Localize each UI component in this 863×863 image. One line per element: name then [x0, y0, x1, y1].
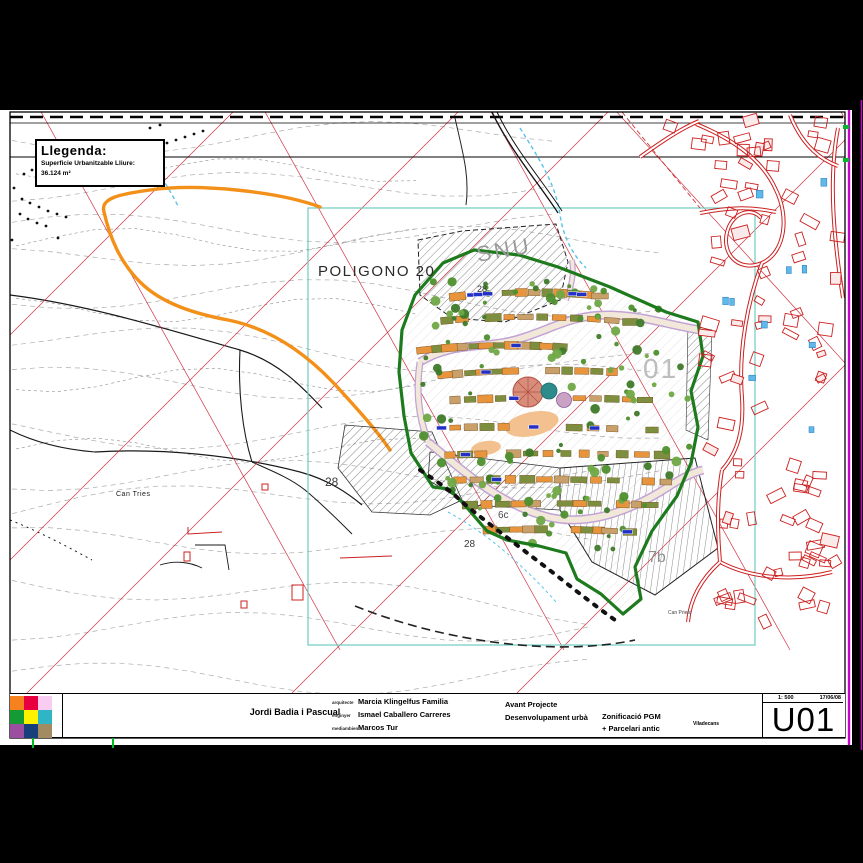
drawing-title: Zonificació PGM + Parcelari antic — [602, 711, 661, 735]
project-title: Avant Projecte Desenvolupament urbà — [505, 698, 588, 724]
legend-line1: Superficie Urbanitzable Lliure: — [41, 160, 159, 168]
pond — [541, 383, 557, 399]
map-label: 6c — [498, 510, 509, 521]
sheet-code-cell: 1: 500 17/06/08 U01 — [762, 694, 845, 739]
drawing-line1: Zonificació PGM — [602, 711, 661, 723]
title-block: Jordi Badia i Pascual arquitecteMarcia K… — [10, 693, 845, 738]
municipality: Viladecans — [693, 721, 719, 727]
legend-title: Llegenda: — [41, 143, 159, 158]
map-label: 7b — [648, 549, 666, 566]
team-list: arquitecteMarcia Klingelfus Familiaengin… — [332, 697, 451, 736]
map-label: 01 — [643, 353, 678, 384]
project-line1: Avant Projecte — [505, 698, 588, 711]
team-name: Ismael Caballero Carreres — [358, 710, 451, 719]
sheet-code: U01 — [762, 701, 845, 739]
team-role: mediambient — [332, 726, 358, 731]
map-label: 28 — [464, 539, 476, 550]
map-label: 28 — [325, 475, 339, 489]
team-name: Marcos Tur — [358, 723, 398, 732]
map-label: Can Tries — [116, 491, 150, 498]
color-calibration-grid — [10, 696, 52, 738]
map-label: POLIGONO 20 — [318, 263, 435, 280]
team-row: arquitecteMarcia Klingelfus Familia — [332, 697, 451, 710]
perimeter-orange-path — [103, 188, 390, 450]
plot-canvas: POLIGONO 20SNU017b6c282828Can TriesCan P… — [0, 0, 863, 863]
palette-swatch — [24, 724, 38, 738]
palette-swatch — [10, 724, 24, 738]
project-line2: Desenvolupament urbà — [505, 711, 588, 724]
palette-swatch — [10, 696, 24, 710]
team-row: enginyerIsmael Caballero Carreres — [332, 710, 451, 723]
palette-swatch — [38, 710, 52, 724]
legend-box: Llegenda: Superficie Urbanitzable Lliure… — [35, 139, 165, 187]
palette-swatch — [38, 724, 52, 738]
map-label: 28 — [477, 284, 487, 294]
legend-line2: 36.124 m² — [41, 170, 159, 178]
palette-swatch — [24, 710, 38, 724]
rural-roads — [10, 295, 362, 570]
red-survey-marks — [184, 484, 392, 608]
palette-swatch — [38, 696, 52, 710]
map-label: Can Prieto — [668, 610, 692, 616]
drawing-line2: + Parcelari antic — [602, 723, 661, 735]
titleblock-separator — [62, 694, 63, 737]
palette-swatch — [24, 696, 38, 710]
team-row: mediambientMarcos Tur — [332, 723, 451, 736]
team-name: Marcia Klingelfus Familia — [358, 697, 448, 706]
palette-swatch — [10, 710, 24, 724]
team-role: enginyer — [332, 713, 358, 718]
team-role: arquitecte — [332, 700, 358, 705]
